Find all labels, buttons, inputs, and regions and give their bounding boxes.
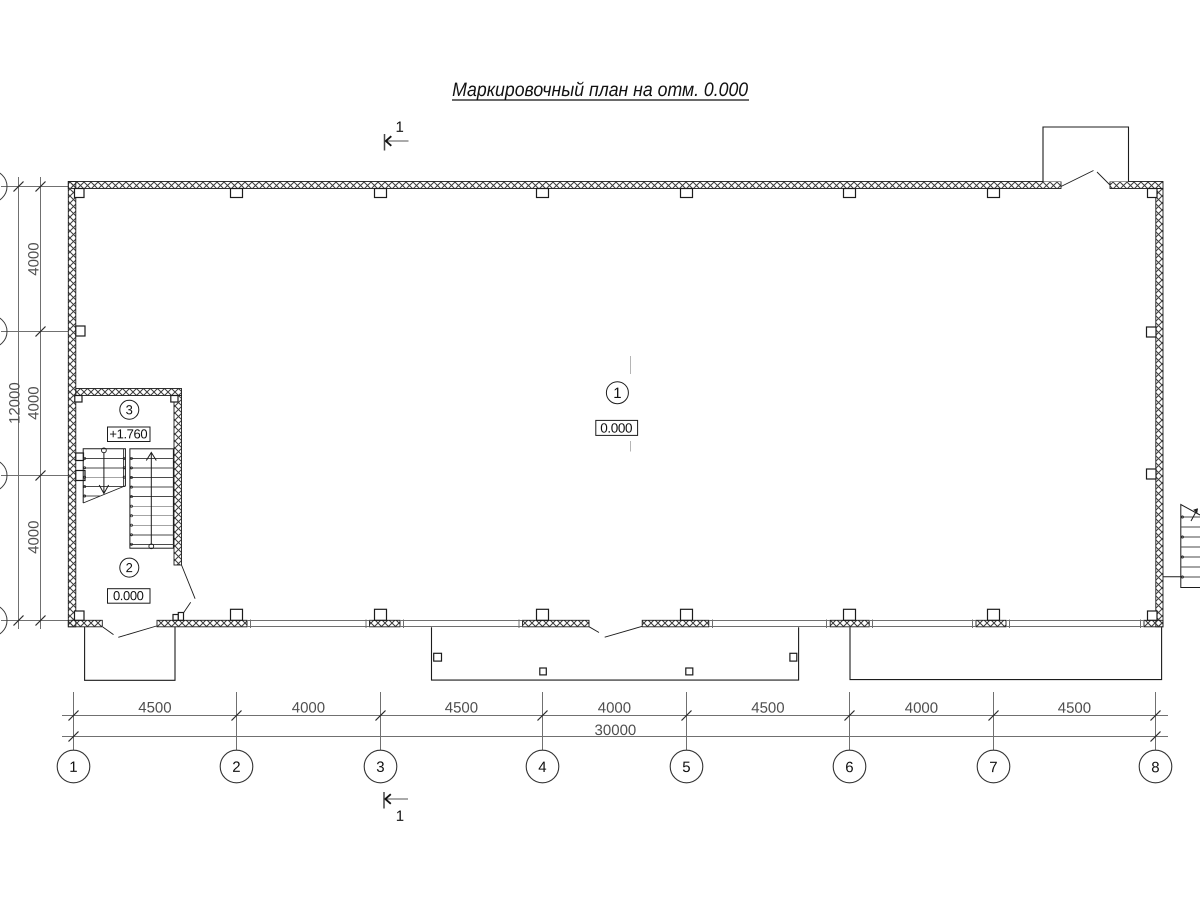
svg-text:6: 6 — [845, 759, 853, 776]
svg-text:4000: 4000 — [292, 699, 325, 716]
svg-text:4000: 4000 — [26, 520, 43, 553]
svg-text:8: 8 — [1151, 759, 1159, 776]
svg-text:1: 1 — [395, 119, 403, 136]
svg-text:2: 2 — [126, 560, 133, 575]
svg-text:4500: 4500 — [138, 699, 171, 716]
svg-text:3: 3 — [376, 759, 384, 776]
svg-text:4500: 4500 — [1058, 700, 1091, 717]
svg-text:3: 3 — [126, 402, 133, 417]
svg-text:7: 7 — [989, 759, 997, 776]
svg-text:+1.760: +1.760 — [109, 426, 147, 441]
svg-text:4000: 4000 — [26, 386, 43, 419]
svg-text:5: 5 — [682, 759, 690, 776]
svg-text:4000: 4000 — [26, 242, 43, 275]
svg-text:Маркировочный план на отм. 0.0: Маркировочный план на отм. 0.000 — [452, 79, 748, 101]
svg-text:12000: 12000 — [6, 382, 23, 424]
svg-text:4500: 4500 — [445, 700, 478, 717]
svg-text:0.000: 0.000 — [600, 421, 632, 436]
svg-text:1: 1 — [613, 385, 621, 402]
svg-text:4000: 4000 — [905, 700, 938, 717]
svg-text:4: 4 — [538, 759, 546, 776]
svg-text:30000: 30000 — [595, 722, 637, 739]
svg-text:4500: 4500 — [751, 700, 784, 717]
svg-text:0.000: 0.000 — [113, 588, 144, 603]
svg-text:1: 1 — [69, 759, 77, 776]
svg-text:2: 2 — [232, 759, 240, 776]
svg-text:4000: 4000 — [598, 700, 631, 717]
svg-text:1: 1 — [396, 808, 404, 825]
